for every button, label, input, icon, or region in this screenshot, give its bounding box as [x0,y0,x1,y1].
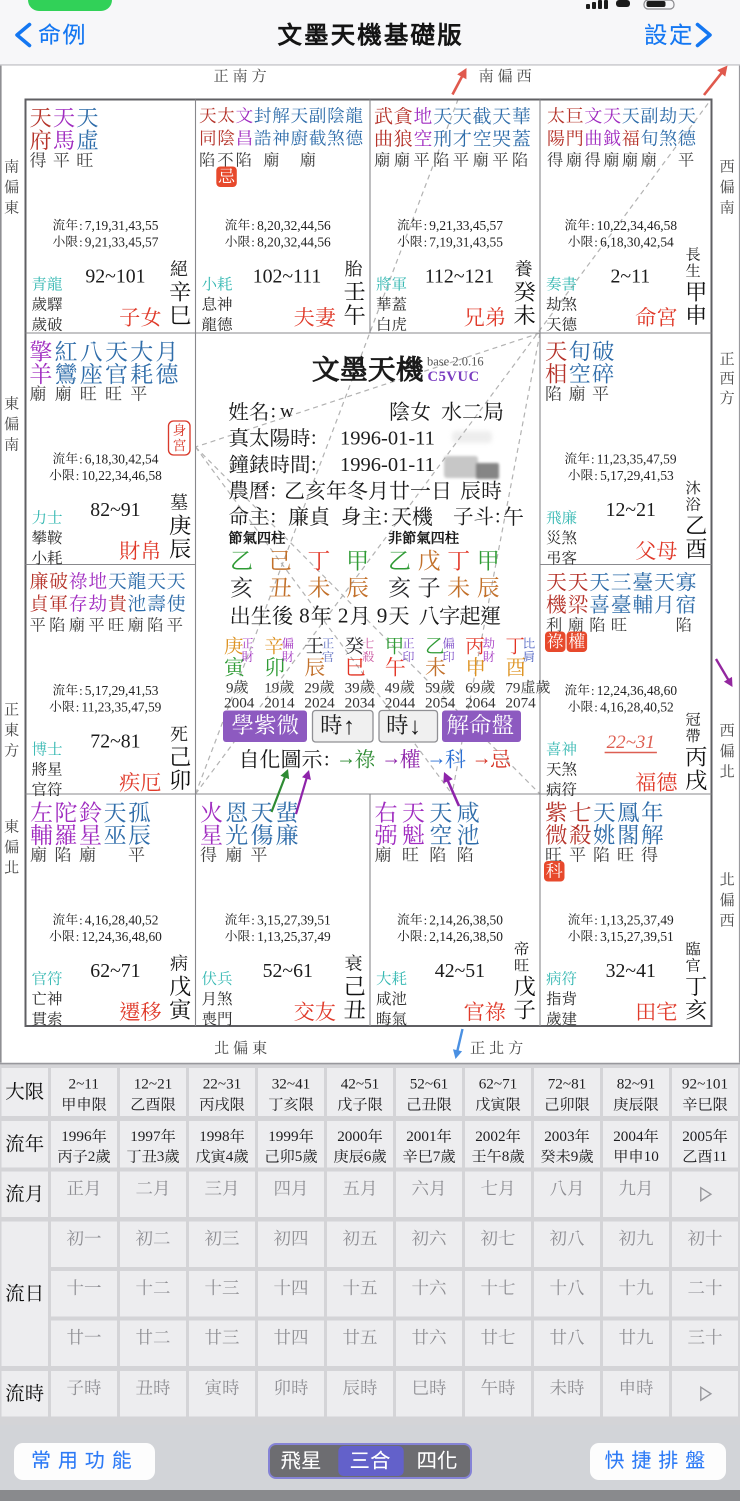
svg-text::: : [76,701,80,715]
svg-text::: : [271,480,277,502]
svg-text:52~61: 52~61 [263,960,313,982]
svg-text::: : [251,236,255,250]
svg-text:72~81: 72~81 [548,1076,587,1093]
svg-text:82~91: 82~91 [617,1076,656,1093]
svg-text:2,14,26,38,50: 2,14,26,38,50 [429,929,503,944]
svg-text:3: 3 [157,1148,165,1165]
svg-text:52~61: 52~61 [410,1076,449,1093]
svg-text:2074: 2074 [505,695,536,712]
svg-text:2000: 2000 [337,1128,368,1145]
svg-text::: : [591,684,595,698]
svg-text:3,15,27,39,51: 3,15,27,39,51 [600,929,674,944]
svg-text:2034: 2034 [345,695,376,712]
svg-text:2,14,26,38,50: 2,14,26,38,50 [429,913,503,928]
svg-text:2~11: 2~11 [69,1076,99,1093]
svg-text:10,22,34,46,58: 10,22,34,46,58 [597,218,678,233]
svg-text::: : [79,453,83,467]
svg-text::: : [424,219,428,233]
svg-text:62~71: 62~71 [479,1076,518,1093]
svg-text:1996-01-11: 1996-01-11 [340,454,435,476]
svg-text:4,16,28,40,52: 4,16,28,40,52 [85,913,159,928]
svg-text:6,18,30,42,54: 6,18,30,42,54 [85,452,159,467]
svg-text:11: 11 [713,1148,728,1165]
svg-text:2064: 2064 [465,695,496,712]
svg-text:42~51: 42~51 [435,960,485,982]
svg-text::: : [76,930,80,944]
svg-text:5,17,29,41,53: 5,17,29,41,53 [85,683,159,698]
svg-text::: : [591,219,595,233]
svg-text:42~51: 42~51 [341,1076,380,1093]
svg-text:92~101: 92~101 [85,266,145,288]
svg-text::: : [594,701,598,715]
svg-text::: : [311,427,317,449]
svg-text::: : [594,914,598,928]
svg-text:→: → [336,748,356,770]
svg-text:↓: ↓ [409,713,421,740]
svg-text::: : [424,930,428,944]
svg-text:1996: 1996 [61,1128,92,1145]
svg-text::: : [79,684,83,698]
svg-text:22~31: 22~31 [203,1076,242,1093]
svg-text:32~41: 32~41 [272,1076,311,1093]
svg-text:7,19,31,43,55: 7,19,31,43,55 [429,235,503,250]
svg-text:12,24,36,48,60: 12,24,36,48,60 [597,683,678,698]
svg-text::: : [591,453,595,467]
svg-text:1998: 1998 [199,1128,230,1145]
svg-text::: : [495,506,501,528]
svg-text:2003: 2003 [544,1128,574,1145]
svg-text:11,23,35,47,59: 11,23,35,47,59 [82,700,162,715]
svg-text::: : [251,914,255,928]
svg-text:2004: 2004 [613,1128,644,1145]
svg-text::: : [79,914,83,928]
svg-text:12,24,36,48,60: 12,24,36,48,60 [82,929,163,944]
svg-text::: : [594,930,598,944]
svg-text::: : [76,469,80,483]
svg-text::: : [271,506,277,528]
svg-text::: : [424,914,428,928]
svg-text:1997: 1997 [130,1128,161,1145]
svg-text:9,21,33,45,57: 9,21,33,45,57 [429,218,503,233]
svg-text:112~121: 112~121 [425,266,494,288]
svg-text:5: 5 [295,1148,303,1165]
svg-text:2: 2 [88,1148,96,1165]
svg-text:C5VUC: C5VUC [428,369,480,385]
svg-text::: : [594,469,598,483]
svg-text:2001: 2001 [406,1128,436,1145]
svg-text:5,17,29,41,53: 5,17,29,41,53 [600,468,674,483]
svg-text::: : [79,219,83,233]
svg-text::: : [251,219,255,233]
svg-text:12~21: 12~21 [134,1076,173,1093]
svg-text:9: 9 [377,604,388,628]
svg-text:2004: 2004 [224,695,255,712]
svg-text:base 2.0.16: base 2.0.16 [427,355,484,369]
svg-text::: : [383,506,389,528]
svg-text:82~91: 82~91 [90,499,140,521]
svg-text:↑: ↑ [343,713,355,740]
svg-text:2054: 2054 [425,695,456,712]
svg-text:2044: 2044 [385,695,416,712]
svg-text::: : [424,236,428,250]
svg-text:11,23,35,47,59: 11,23,35,47,59 [597,452,677,467]
svg-text:62~71: 62~71 [90,960,140,982]
svg-text:→: → [472,748,492,770]
svg-text:→: → [426,748,446,770]
svg-text:2002: 2002 [475,1128,505,1145]
svg-text:102~111: 102~111 [253,266,322,288]
svg-text:1,13,25,37,49: 1,13,25,37,49 [600,913,674,928]
svg-text:2024: 2024 [304,695,335,712]
svg-text:10: 10 [644,1148,660,1165]
svg-text:32~41: 32~41 [606,960,656,982]
svg-text:8,20,32,44,56: 8,20,32,44,56 [257,218,331,233]
svg-text:2~11: 2~11 [611,266,651,288]
svg-text:→: → [381,748,401,770]
svg-text:2: 2 [338,604,349,628]
svg-text:8: 8 [299,604,310,628]
svg-text:7,19,31,43,55: 7,19,31,43,55 [85,218,159,233]
svg-text:9,21,33,45,57: 9,21,33,45,57 [85,235,159,250]
svg-text:1,13,25,37,49: 1,13,25,37,49 [257,929,331,944]
svg-text:22~31: 22~31 [607,732,655,753]
svg-text::: : [79,236,83,250]
svg-text:6: 6 [364,1148,372,1165]
svg-text:72~81: 72~81 [90,731,140,753]
svg-text:4,16,28,40,52: 4,16,28,40,52 [600,700,674,715]
svg-text::: : [324,749,330,771]
svg-text:92~101: 92~101 [682,1076,728,1093]
svg-text::: : [271,401,277,423]
svg-text::: : [251,930,255,944]
svg-text::: : [311,454,317,476]
svg-text:2014: 2014 [264,695,295,712]
svg-text:1996-01-11: 1996-01-11 [340,428,435,450]
svg-text:12~21: 12~21 [606,499,656,521]
svg-text:3,15,27,39,51: 3,15,27,39,51 [257,913,331,928]
svg-text:6,18,30,42,54: 6,18,30,42,54 [600,235,674,250]
svg-text:8: 8 [502,1148,510,1165]
svg-text:10,22,34,46,58: 10,22,34,46,58 [82,468,163,483]
svg-text:4: 4 [226,1148,234,1165]
svg-text:7: 7 [433,1148,441,1165]
svg-text:9: 9 [571,1148,579,1165]
svg-text:8,20,32,44,56: 8,20,32,44,56 [257,235,331,250]
svg-text::: : [594,236,598,250]
svg-text:w: w [280,401,294,422]
svg-text:1999: 1999 [268,1128,298,1145]
svg-text:2005: 2005 [682,1128,712,1145]
